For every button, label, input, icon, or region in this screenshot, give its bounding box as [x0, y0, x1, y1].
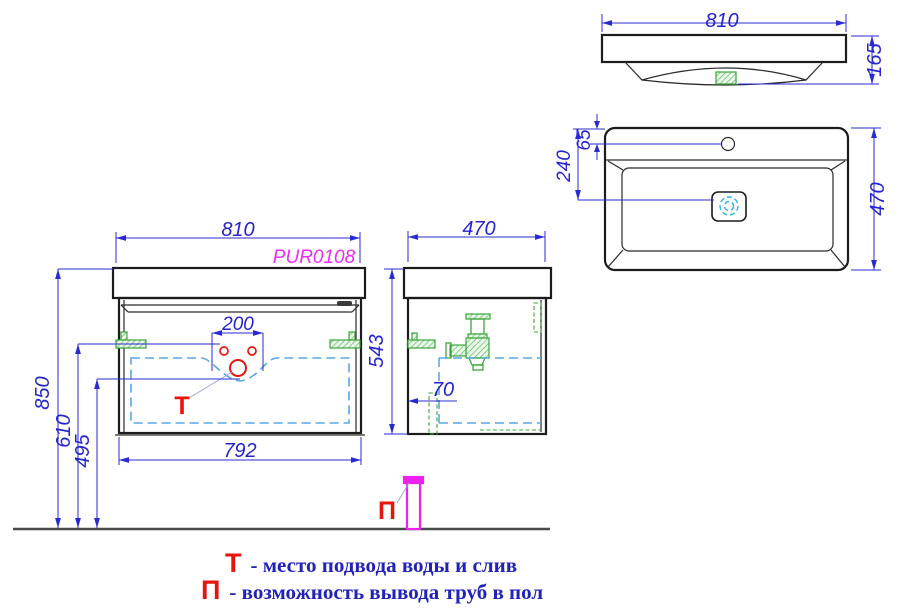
- dim-cutout-width: 200: [221, 314, 254, 335]
- drawer-outline-dashed: [131, 358, 349, 423]
- legend-symbol-water: Т: [225, 550, 242, 577]
- basin-deck: [602, 35, 846, 62]
- wall-bracket-side: [408, 333, 435, 348]
- wall-bracket-right: [330, 332, 360, 348]
- faucet-hole: [722, 138, 735, 151]
- technical-drawing-canvas: 810 165 470 65 240: [0, 0, 900, 609]
- legend-text-pipe: - возможность вывода труб в пол: [229, 582, 543, 603]
- supply-hole-left: [220, 347, 228, 355]
- water-marker: Т: [174, 392, 189, 420]
- dim-front-bottom-width: 792: [223, 440, 256, 462]
- legend-row-water: Т - место подвода воды и слив: [225, 550, 517, 577]
- wall-bracket-left: [116, 332, 146, 348]
- siphon-trap: [446, 314, 490, 370]
- dim-height-drain: 495: [72, 433, 94, 467]
- drawing-svg: 810 165 470 65 240: [0, 0, 900, 609]
- drawer-handle: [337, 301, 352, 306]
- floor-and-pipe: П: [13, 477, 550, 529]
- dim-basin-width: 810: [705, 10, 738, 32]
- dim-drain-offset: 240: [554, 150, 575, 183]
- dim-side-depth: 470: [462, 218, 495, 240]
- cabinet-side-view: 470 70 543: [366, 218, 551, 434]
- back-rail-dashed: [534, 303, 541, 332]
- floor-marker: П: [378, 497, 396, 525]
- legend-row-pipe: П - возможность вывода труб в пол: [201, 577, 543, 604]
- drain-hole: [230, 360, 246, 376]
- legend-symbol-pipe: П: [201, 577, 220, 604]
- basin-drain-fitting: [716, 72, 736, 84]
- front-sink-top: [113, 268, 365, 298]
- product-code: PUR0108: [273, 247, 356, 268]
- dim-side-height: 543: [366, 334, 388, 367]
- legend-text-water: - место подвода воды и слив: [251, 555, 518, 576]
- dim-faucet-offset: 65: [574, 129, 595, 151]
- cabinet-front-view: 810 PUR0108 200 Т: [32, 219, 365, 528]
- dim-front-width: 810: [221, 219, 254, 241]
- dim-basin-height: 165: [864, 42, 886, 76]
- supply-hole-right: [248, 347, 256, 355]
- dim-pipe-offset: 70: [432, 379, 454, 401]
- floor-pipe: [404, 477, 423, 529]
- side-sink-top: [404, 268, 551, 298]
- dim-basin-depth: 470: [867, 182, 889, 215]
- dim-height-total: 850: [32, 376, 54, 409]
- basin-top-view: 470 65 240: [554, 114, 889, 270]
- basin-front-view: 810 165: [602, 10, 886, 85]
